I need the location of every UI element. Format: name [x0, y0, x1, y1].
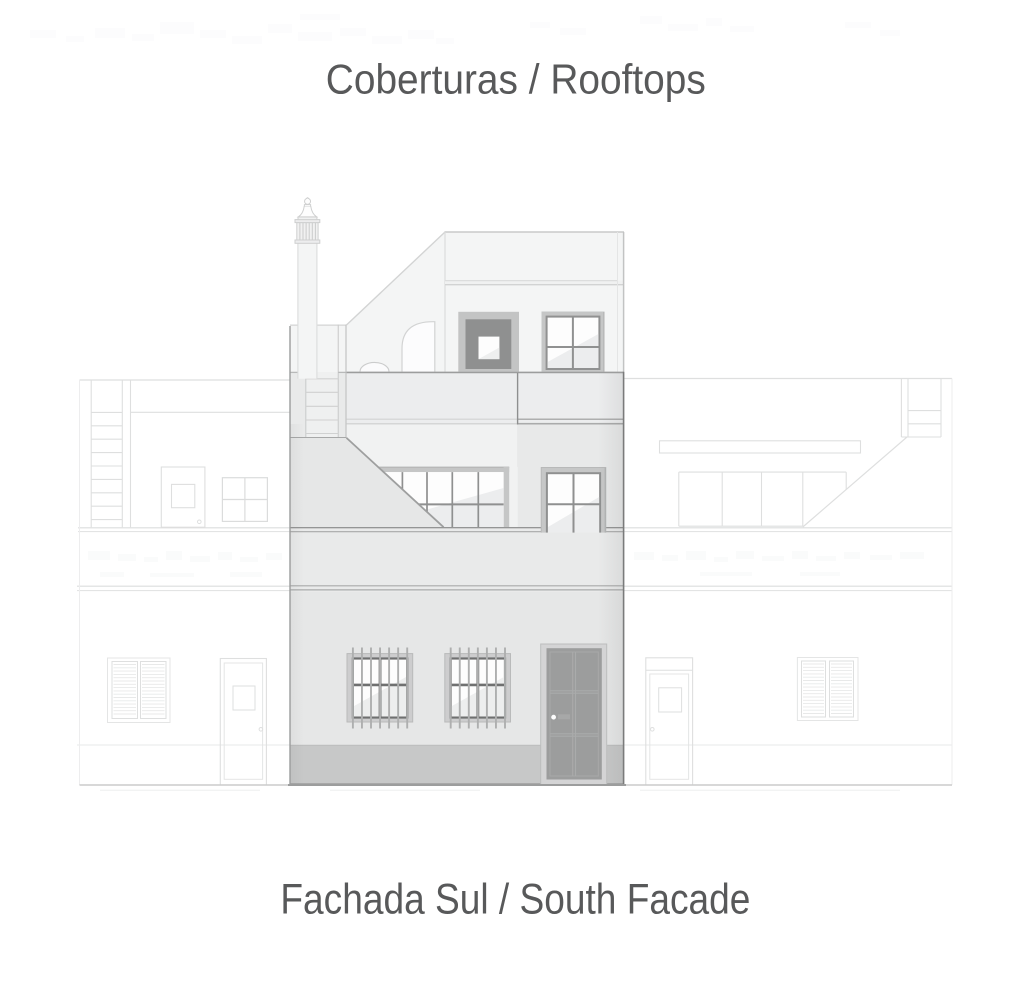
svg-text:Fachada Sul / South Facade: Fachada Sul / South Facade	[280, 875, 750, 923]
svg-text:Coberturas / Rooftops: Coberturas / Rooftops	[326, 56, 706, 103]
